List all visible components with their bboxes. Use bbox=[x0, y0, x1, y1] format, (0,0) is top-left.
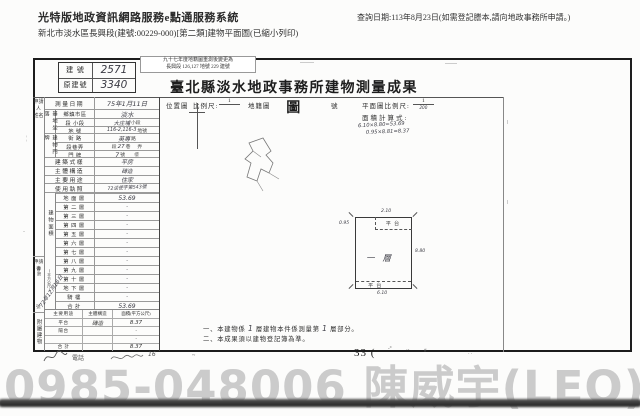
field-value: 大庄埔 小段 bbox=[95, 119, 159, 126]
field-label: 建築式樣 bbox=[45, 158, 95, 166]
stamp-line2: 長興段 126,127 地號 229 建號 bbox=[143, 65, 253, 72]
annex-group-cell: 附屬建物 bbox=[33, 312, 44, 351]
site-group-label-cell: 基地坐落 bbox=[45, 110, 56, 133]
floor-label: 第七層 bbox=[56, 248, 95, 256]
annex-use: 平台 bbox=[45, 319, 83, 326]
annex-area: · bbox=[113, 327, 159, 334]
plan-dim-left: 0.95 bbox=[339, 221, 349, 226]
field-label: 主要用途 bbox=[45, 176, 95, 184]
terrace-bottom-label: 平台 bbox=[368, 282, 384, 289]
floor-area-group: 建物面積 (平方公尺) 地面層 53.69 第二層 · bbox=[45, 192, 159, 309]
annex-area: · bbox=[113, 336, 159, 343]
note-line-1: 一、本建物係 1 層建物本件係測量第 1 層部分。 bbox=[203, 324, 359, 333]
floor-area-value: · bbox=[95, 239, 159, 247]
field-label: 段巷弄 bbox=[56, 143, 95, 150]
floor-area-value: · bbox=[95, 248, 159, 256]
plan-dim-bottom: 6.10 bbox=[377, 291, 387, 296]
table-row-floor: 第三層 · bbox=[56, 211, 159, 220]
form-row-district: 鄉鎮市區 淡水 bbox=[56, 110, 159, 118]
field-label: 主體構造 bbox=[45, 167, 95, 175]
plan-dim-right: 8.80 bbox=[415, 249, 425, 254]
application-cell: 申請書 字第 號 72年12月16日 bbox=[33, 256, 44, 312]
field-value: 段 27 巷 弄 bbox=[95, 143, 159, 150]
applicant-cell: 申請人 姓名 bbox=[33, 97, 44, 256]
table-row-floor: 地下層 · bbox=[56, 283, 159, 292]
floor-label: 第二層 bbox=[56, 203, 95, 211]
building-number-box: 建 號 2571 原建號 3340 bbox=[58, 62, 136, 93]
footer-number-mark: 16 bbox=[148, 351, 156, 358]
plan-scale-label: 平面圖比例尺: bbox=[362, 100, 410, 110]
floor-area-value: · bbox=[95, 203, 159, 211]
field-label: 街 路 bbox=[56, 134, 95, 142]
resurvey-stamp: 九十七年度地籍圖重測後變更為 長興段 126,127 地號 229 建號 bbox=[140, 56, 256, 73]
annex-area: 8.37 bbox=[113, 344, 159, 351]
cadastre-no-label: 號 bbox=[331, 100, 339, 110]
signature-scribble bbox=[42, 349, 68, 365]
floor-area-value: · bbox=[95, 293, 159, 301]
annex-struct bbox=[83, 327, 113, 334]
form-row-survey-date: 測量日期 75年1月11日 bbox=[45, 97, 159, 109]
field-label: 測量日期 bbox=[45, 97, 95, 109]
plan-dim-top: 2.10 bbox=[381, 209, 391, 214]
floor-label: 第三層 bbox=[56, 212, 95, 220]
applicant-label: 申請人 bbox=[33, 100, 43, 112]
annex-use: 陽台 bbox=[45, 327, 83, 334]
table-row-annex: 陽台 · bbox=[45, 326, 159, 334]
form-row-license: 使用執照 72淡使字第543號 bbox=[45, 183, 159, 192]
annex-rows: 平台 磚造 8.37 陽台 · bbox=[45, 318, 159, 351]
floor-label: 騎樓 bbox=[56, 293, 95, 301]
annex-struct bbox=[83, 344, 113, 351]
form-right-line bbox=[503, 97, 504, 352]
room-label: 一層 bbox=[366, 252, 399, 264]
table-row-annex: 平台 磚造 8.37 bbox=[45, 318, 159, 326]
annex-table: 主要用途 主體構造 面積(平方公尺) 平台 磚造 8.37 陽台 bbox=[45, 309, 159, 351]
floor-area-value: · bbox=[95, 212, 159, 220]
floor-area-value: · bbox=[95, 257, 159, 265]
field-value: 淡水 bbox=[95, 110, 159, 118]
footer-tick-mark: ·- bbox=[406, 348, 409, 353]
floor-area-value: · bbox=[95, 284, 159, 292]
form-row-lane: 段巷弄 段 27 巷 弄 bbox=[56, 142, 159, 150]
floor-rows: 地面層 53.69 第二層 · 第三層 · bbox=[56, 193, 159, 309]
annex-use bbox=[45, 336, 83, 343]
annex-group-label: 附屬建物 bbox=[35, 319, 43, 345]
floor-area-group-label: 建物面積 bbox=[46, 210, 54, 237]
annex-header-struct: 主體構造 bbox=[83, 310, 113, 318]
floor-area-value: · bbox=[95, 266, 159, 274]
site-group: 基地坐落 鄉鎮市區 淡水 段 小段 大庄埔 小段 bbox=[45, 109, 159, 133]
footer-tick-mark: -° bbox=[388, 347, 392, 352]
annex-struct: 磚造 bbox=[83, 319, 113, 326]
building-no-value: 2571 bbox=[93, 63, 135, 78]
original-no-label: 原建號 bbox=[59, 79, 93, 93]
field-value: 磚造 bbox=[95, 167, 159, 175]
pencil-dash bbox=[445, 63, 457, 64]
system-title: 光特版地政資訊網路服務e點通服務系統 bbox=[38, 9, 239, 25]
field-value: 平房 bbox=[95, 158, 159, 166]
signature-scribble bbox=[110, 351, 144, 363]
parcel-sketch bbox=[233, 133, 291, 195]
form-row-style: 建築式樣 平房 bbox=[45, 157, 159, 166]
document-subtitle: 新北市淡水區長興段(建號:00229-000)[第二類]建物平面圖(已縮小列印) bbox=[38, 27, 298, 39]
building-plan: 平台 一層 平台 bbox=[355, 217, 412, 289]
table-row-floor: 第六層 · bbox=[56, 238, 159, 247]
table-row-floor: 第七層 · bbox=[56, 247, 159, 256]
location-cross-vertical bbox=[197, 103, 198, 149]
footer-dot-marks: · · bbox=[468, 352, 473, 357]
floor-area-value: · bbox=[95, 221, 159, 229]
location-cross-horizontal bbox=[189, 112, 205, 113]
form-row-usage: 主要用途 住家 bbox=[45, 175, 159, 184]
applicant-sub-label: 姓名 bbox=[33, 114, 43, 119]
field-label: 使用執照 bbox=[45, 184, 95, 192]
margin-mark: ¦ bbox=[26, 136, 27, 142]
pencil-dash bbox=[300, 62, 314, 63]
table-row-floor: 騎樓 · bbox=[56, 292, 159, 301]
field-label: 鄉鎮市區 bbox=[56, 110, 95, 118]
annex-struct bbox=[83, 336, 113, 343]
floor-label: 第四層 bbox=[56, 221, 95, 229]
form-row-structure: 主體構造 磚造 bbox=[45, 166, 159, 175]
floor-label: 地下層 bbox=[56, 284, 95, 292]
annex-header-area: 面積(平方公尺) bbox=[113, 310, 159, 318]
page-number-stamp: 33 ( bbox=[354, 347, 375, 359]
phone-label: 電話 bbox=[72, 353, 84, 362]
floor-area-value: · bbox=[95, 230, 159, 238]
margin-mark: - bbox=[23, 229, 25, 235]
terrace-top-area: 平台 bbox=[375, 217, 412, 230]
field-value: 英專 路 bbox=[95, 134, 159, 142]
scanned-document-page: 光特版地政資訊網路服務e點通服務系統 查詢日期:113年8月23日(如需登記謄本… bbox=[0, 0, 640, 410]
table-row-floor: 第八層 · bbox=[56, 256, 159, 265]
floor-label: 第六層 bbox=[56, 239, 95, 247]
building-no-label: 建 號 bbox=[59, 63, 93, 78]
location-scale-fraction: 1 bbox=[219, 98, 240, 110]
location-map-label: 位置圖 bbox=[166, 100, 189, 110]
table-row-floor: 第二層 · bbox=[56, 202, 159, 211]
annex-header-use: 主要用途 bbox=[45, 310, 83, 318]
field-label: 段 小段 bbox=[56, 119, 95, 126]
address-group: 建物門牌 街 路 英專 路 段巷弄 段 27 bbox=[45, 133, 159, 157]
address-group-label-cell: 建物門牌 bbox=[45, 134, 56, 157]
floor-label: 第八層 bbox=[56, 257, 95, 265]
floor-area-value: · bbox=[95, 275, 159, 283]
binding-mark bbox=[507, 120, 508, 124]
form-rows: 測量日期 75年1月11日 基地坐落 鄉鎮市區 淡水 段 小段 大庄埔 bbox=[45, 97, 159, 351]
binding-mark bbox=[507, 200, 508, 204]
floor-label: 地面層 bbox=[56, 194, 95, 202]
terrace-top-label: 平台 bbox=[386, 220, 402, 227]
form-row-section: 段 小段 大庄埔 小段 bbox=[56, 118, 159, 126]
field-value: 75年1月11日 bbox=[95, 97, 159, 109]
original-no-value: 3340 bbox=[93, 79, 135, 93]
annex-header-row: 主要用途 主體構造 面積(平方公尺) bbox=[45, 310, 159, 318]
note-line-2: 二、本成果須以建物登記簿為準。 bbox=[203, 334, 309, 343]
form-row-street: 街 路 英專 路 bbox=[56, 134, 159, 142]
query-date: 查詢日期:113年8月23日(如需登記謄本,請向地政事務所申請。) bbox=[357, 12, 570, 23]
footer-hash-mark: # bbox=[424, 349, 427, 354]
cadastre-map-label: 地籍圖 bbox=[248, 100, 271, 110]
floor-label: 第五層 bbox=[56, 230, 95, 238]
table-row-annex: · bbox=[45, 335, 159, 343]
table-row-floor: 第十層 · bbox=[56, 274, 159, 283]
footer-tilde-mark: ~ bbox=[192, 353, 195, 359]
floor-area-value: 53.69 bbox=[95, 194, 159, 202]
annex-area: 8.37 bbox=[113, 319, 159, 326]
table-row-floor: 地面層 53.69 bbox=[56, 193, 159, 202]
form-left-column: 申請人 姓名 申請書 字第 號 72年12月16日 附屬建物 bbox=[33, 97, 45, 351]
application-no-prefix: 字第 bbox=[36, 267, 42, 276]
scan-edge-bar bbox=[0, 399, 640, 407]
plan-scale-fraction: 1 200 bbox=[413, 98, 434, 110]
table-row-floor: 第四層 · bbox=[56, 220, 159, 229]
table-row-floor: 第五層 · bbox=[56, 229, 159, 238]
survey-form-table: 申請人 姓名 申請書 字第 號 72年12月16日 附屬建物 測量日期 75年1… bbox=[33, 97, 160, 351]
